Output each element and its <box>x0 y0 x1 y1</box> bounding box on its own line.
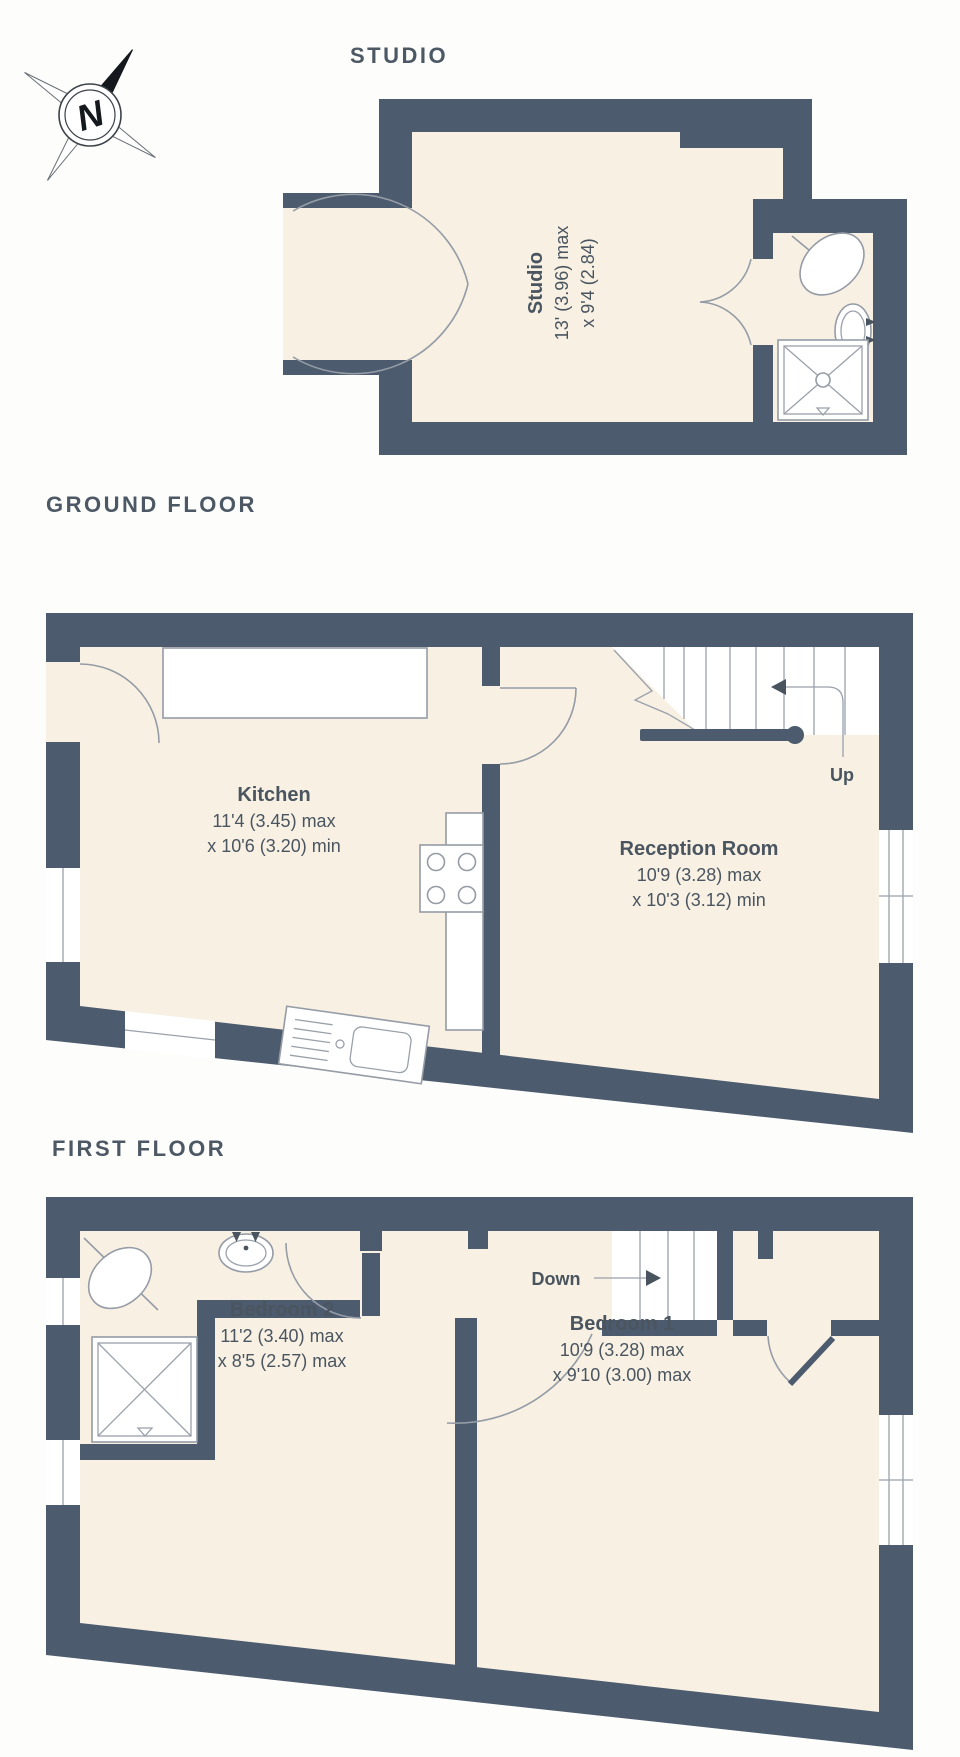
floorplan-page: N STUDIO <box>0 0 960 1757</box>
kitchen-name: Kitchen <box>237 784 310 806</box>
first-left-window-lower <box>46 1440 80 1505</box>
stair-handrail <box>640 729 792 741</box>
studio-plan: Studio 13' (3.96) max x 9'4 (2.84) <box>283 99 907 455</box>
first-floor-plan: Down <box>46 1197 913 1750</box>
studio-room-dim2: x 9'4 (2.84) <box>578 238 598 327</box>
first-right-window <box>879 1415 913 1545</box>
ground-partition-lower <box>482 764 500 1064</box>
studio-floor-title: STUDIO <box>350 43 448 68</box>
ground-left-window <box>46 868 80 962</box>
reception-dim2: x 10'3 (3.12) min <box>632 890 766 910</box>
bedroom1-dim2: x 9'10 (3.00) max <box>553 1365 692 1385</box>
ground-right-window <box>879 830 913 963</box>
studio-entry-recess-floor <box>283 208 412 360</box>
first-floor-title: FIRST FLOOR <box>52 1136 226 1161</box>
first-left-window-upper <box>46 1278 80 1325</box>
ground-floor-plan: Up Kitchen 11'4 (3.45) max x 10'6 (3.20)… <box>46 613 913 1133</box>
bedroom1-name: Bedroom 1 <box>570 1313 674 1335</box>
kitchen-dim2: x 10'6 (3.20) min <box>207 836 341 856</box>
shower-tray-icon <box>778 340 868 420</box>
bedroom2-dim2: x 8'5 (2.57) max <box>218 1351 347 1371</box>
ground-floor-title: GROUND FLOOR <box>46 492 257 517</box>
bedroom1-label: Bedroom 1 10'9 (3.28) max x 9'10 (3.00) … <box>553 1313 692 1385</box>
down-label: Down <box>532 1269 581 1289</box>
bedroom2-dim1: 11'2 (3.40) max <box>220 1326 343 1346</box>
reception-label: Reception Room 10'9 (3.28) max x 10'3 (3… <box>620 838 779 910</box>
up-label: Up <box>830 765 854 785</box>
kitchen-dim1: 11'4 (3.45) max <box>212 811 335 831</box>
kitchen-counter-top <box>163 648 427 718</box>
bedroom2-label: Bedroom 2 11'2 (3.40) max x 8'5 (2.57) m… <box>218 1299 347 1371</box>
ground-partition-upper <box>482 647 500 686</box>
reception-name: Reception Room <box>620 838 779 860</box>
floorplan-canvas: N STUDIO <box>0 0 960 1757</box>
studio-room-name: Studio <box>525 252 547 314</box>
bedroom1-dim1: 10'9 (3.28) max <box>560 1340 685 1360</box>
first-shower-tray-icon <box>92 1337 197 1442</box>
compass-icon: N <box>25 50 156 181</box>
reception-dim1: 10'9 (3.28) max <box>637 865 762 885</box>
hob-icon <box>420 845 483 912</box>
bedroom2-name: Bedroom 2 <box>230 1299 334 1321</box>
first-stairs <box>612 1231 717 1320</box>
studio-room-dim1: 13' (3.96) max <box>552 226 572 341</box>
